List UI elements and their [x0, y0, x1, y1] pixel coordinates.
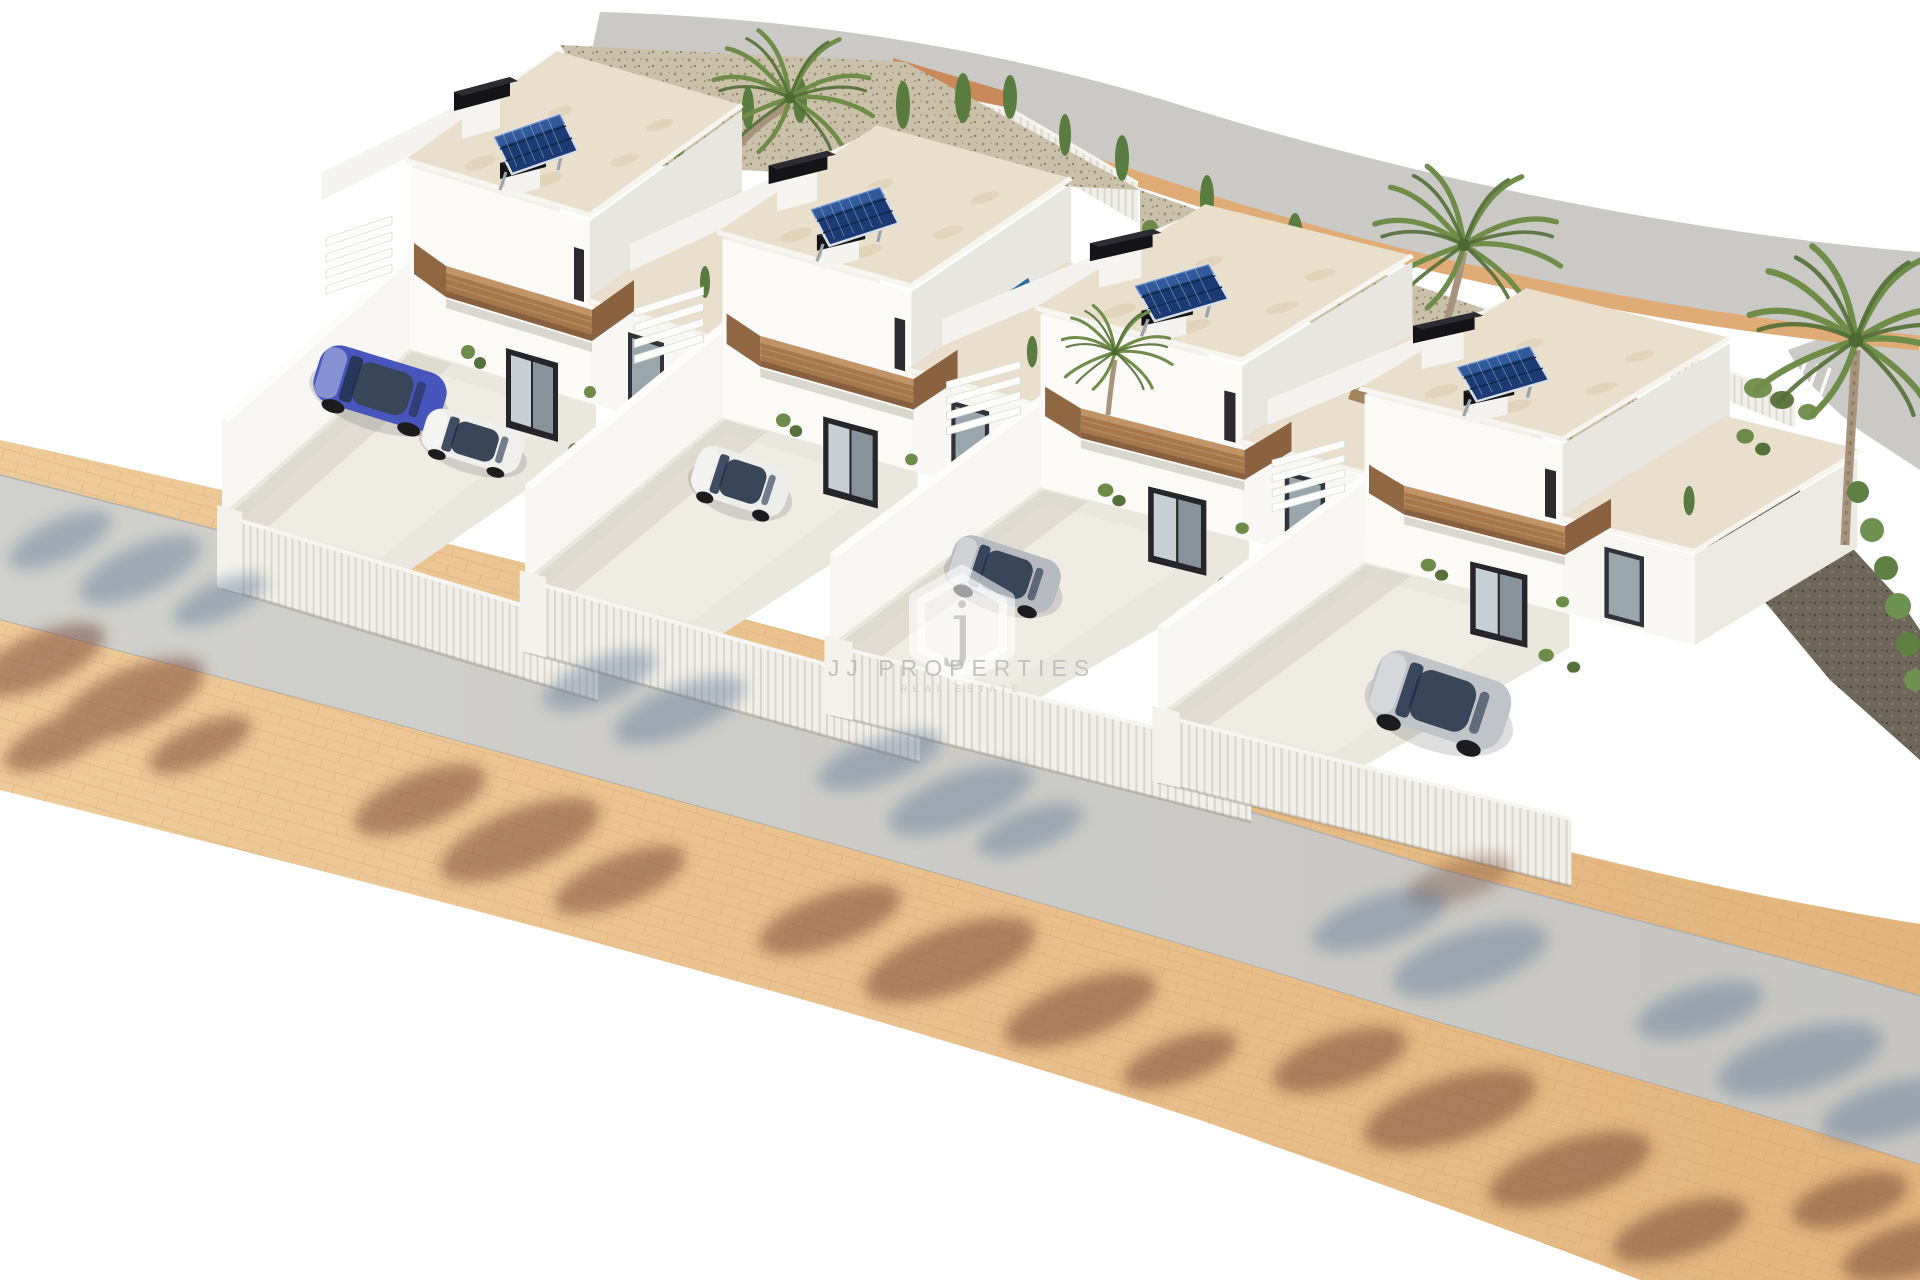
- watermark-tagline: REAL ESTATE: [900, 684, 1023, 695]
- architectural-render-scene: j JJ PROPERTIES REAL ESTATE: [0, 0, 1920, 1280]
- watermark-brand: JJ PROPERTIES: [828, 655, 1096, 681]
